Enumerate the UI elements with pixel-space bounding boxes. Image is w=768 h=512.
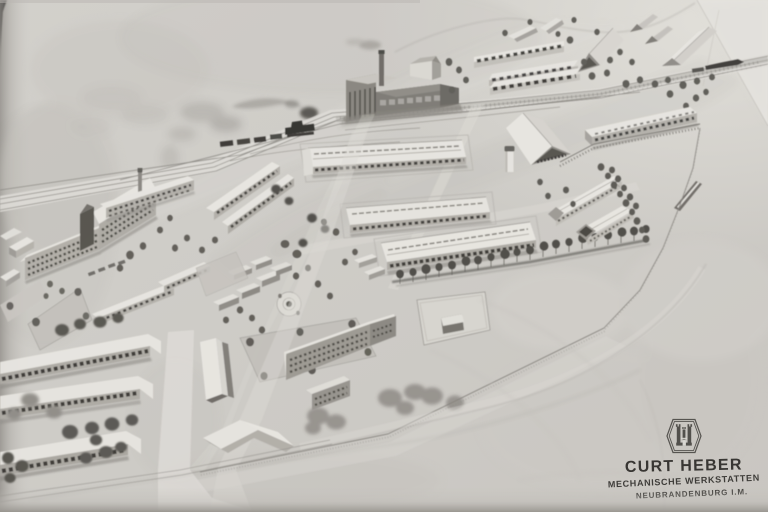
svg-text:CURT HEBER: CURT HEBER	[625, 457, 743, 476]
